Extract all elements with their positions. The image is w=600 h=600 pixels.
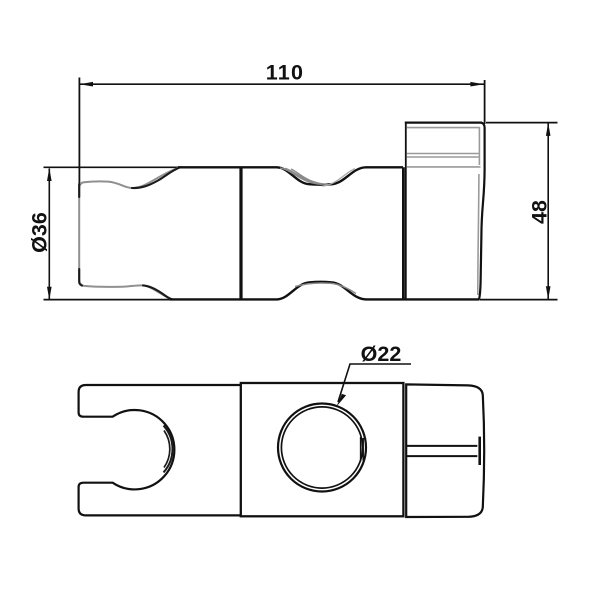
svg-text:48: 48 [528,200,552,224]
svg-text:110: 110 [266,61,305,85]
svg-text:Ø36: Ø36 [28,212,52,253]
svg-text:Ø22: Ø22 [361,342,402,366]
